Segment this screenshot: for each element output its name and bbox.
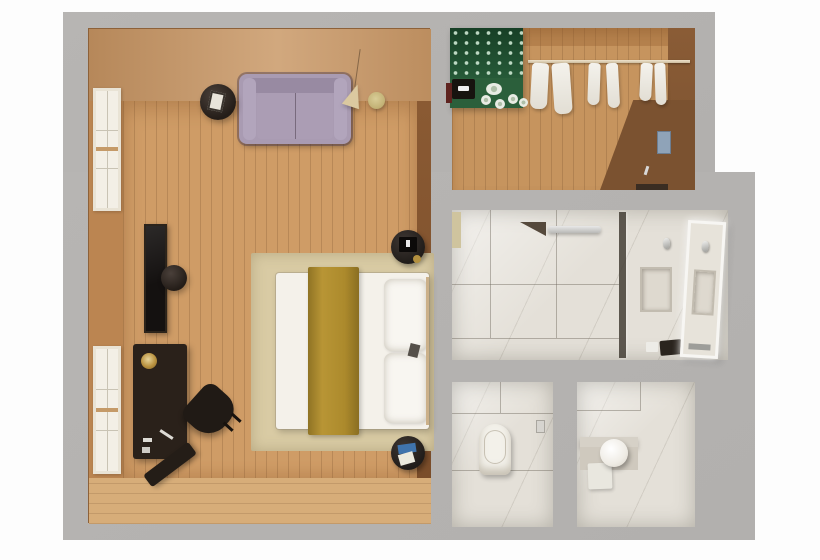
saucer <box>519 98 528 107</box>
mirror-reflection-shelf <box>688 343 710 350</box>
tv-stool <box>161 265 187 291</box>
desk <box>133 344 187 459</box>
hanging-garment <box>530 63 549 110</box>
window-lower <box>93 346 121 474</box>
towel-box <box>588 463 613 490</box>
hanging-garment <box>606 63 620 109</box>
window-upper <box>93 88 121 211</box>
mirror-reflection-faucet <box>701 241 709 252</box>
red-books <box>446 83 452 103</box>
toilet-room <box>452 382 553 527</box>
teapot <box>486 83 502 95</box>
desk-phone <box>142 447 150 453</box>
table-frame <box>207 91 226 113</box>
sink-faucet <box>663 238 670 249</box>
coffee-machine <box>452 79 475 99</box>
pillow-bottom <box>384 353 427 423</box>
door-threshold <box>636 184 668 190</box>
bed-runner <box>308 267 359 435</box>
side-table <box>200 84 236 120</box>
toilet <box>479 424 511 475</box>
shower-corner-shelf <box>520 222 546 236</box>
nightstand-upper <box>391 230 425 264</box>
nightstand-lower <box>391 436 425 470</box>
floor-plan-render <box>0 0 820 560</box>
sofa <box>239 74 351 144</box>
washbasin-room <box>577 382 695 527</box>
sofa-armrest-left <box>243 78 256 140</box>
bedroom <box>88 28 430 523</box>
closet-corner-wall <box>600 100 695 190</box>
sofa-armrest-right <box>334 78 347 140</box>
pillow-top <box>384 279 427 351</box>
bathroom <box>452 210 728 360</box>
teacup <box>481 95 491 105</box>
sink-niche <box>640 267 672 312</box>
hanging-garment <box>639 63 653 102</box>
minibar-cabinet <box>450 28 523 108</box>
glass-partition <box>619 212 626 358</box>
teacup <box>495 99 505 109</box>
mirror-reflection-niche <box>691 269 716 315</box>
round-basin <box>600 439 628 467</box>
gold-disc-decor <box>368 92 385 109</box>
desk-lamp <box>141 353 157 369</box>
towel-rail <box>452 212 461 248</box>
teacup <box>508 94 518 104</box>
blue-wall-panel <box>657 131 671 154</box>
notepad <box>398 451 415 466</box>
headboard <box>426 277 429 425</box>
lit-mirror-door <box>680 220 726 359</box>
hanging-garment <box>551 62 573 114</box>
hanging-garment <box>587 63 600 105</box>
sofa-back <box>244 78 346 93</box>
toilet-paper-holder <box>536 420 545 433</box>
bedroom-bottom-wall <box>89 478 431 524</box>
minibar-glassware <box>450 28 523 78</box>
soap-dish <box>646 342 658 352</box>
desk-remote <box>143 438 152 442</box>
brass-cup <box>413 255 421 263</box>
desk-pen <box>159 429 173 440</box>
shower-head-bar <box>548 226 601 233</box>
closet-room <box>452 28 695 190</box>
hanging-garment <box>654 63 666 105</box>
